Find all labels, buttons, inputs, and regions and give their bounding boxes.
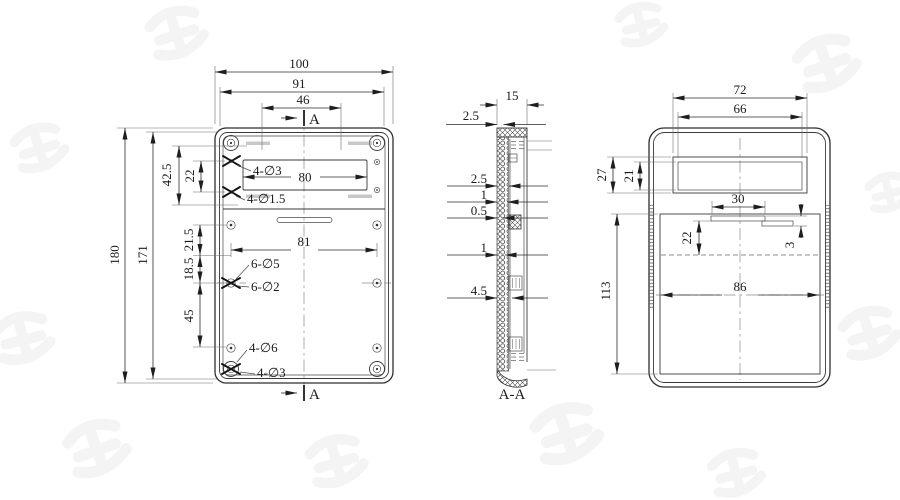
front-small-slot <box>277 218 332 223</box>
dim-text-2-5-top: 2.5 <box>463 108 479 123</box>
dim-text-15: 15 <box>506 88 519 103</box>
side-view: 72 66 27 21 30 22 <box>594 82 830 387</box>
callout-6d5: 6-∅5 <box>251 256 280 271</box>
dim-text-1b: 1 <box>481 240 488 255</box>
dim-top-offset: 42.5 <box>159 146 247 205</box>
front-view: 80 81 100 91 46 <box>107 56 393 403</box>
callout-4d3-bottom: 4-∅3 <box>257 365 286 380</box>
callout-4d6: 4-∅6 <box>249 340 278 355</box>
dim-tab-width: 30 <box>712 191 765 214</box>
section-bottom-hidden <box>511 354 527 361</box>
section-wall-band <box>509 139 511 369</box>
callout-cross-marks <box>222 156 240 374</box>
callout-4d3-top: 4-∅3 <box>253 163 282 178</box>
dim-text-46: 46 <box>297 92 311 107</box>
dim-text-3: 3 <box>782 242 797 249</box>
dim-mid-a: 21.5 <box>181 225 231 256</box>
side-outer-outline <box>649 128 830 387</box>
section-top-cap <box>497 128 527 137</box>
dim-text-21: 21 <box>621 170 636 183</box>
dim-text-180: 180 <box>107 245 122 265</box>
dim-text-42-5: 42.5 <box>159 164 174 187</box>
dim-depth: 15 <box>480 88 544 125</box>
section-left-wall <box>497 137 509 371</box>
section-letter-top: A <box>309 112 320 128</box>
dim-text-2-5: 2.5 <box>471 171 487 186</box>
dim-text-45: 45 <box>181 310 196 323</box>
dim-text-66: 66 <box>734 101 748 116</box>
dim-text-81: 81 <box>298 234 311 249</box>
callout-4d1-5: 4-∅1.5 <box>247 191 285 206</box>
dim-text-22: 22 <box>182 170 197 183</box>
callout-6d2: 6-∅2 <box>251 279 280 294</box>
dim-text-86: 86 <box>734 279 748 294</box>
dim-tab-offset: 22 <box>679 221 712 255</box>
dim-text-4-5: 4.5 <box>471 283 487 298</box>
section-letter-bottom: A <box>309 387 320 403</box>
enclosure-technical-drawing: 80 81 100 91 46 <box>0 0 900 500</box>
dim-text-1a: 1 <box>481 187 488 202</box>
dim-text-72: 72 <box>734 82 747 97</box>
section-marker-bottom: A <box>281 385 320 403</box>
dim-mid-b: 18.5 <box>181 256 224 284</box>
section-bosses <box>509 154 522 351</box>
dim-pilot-pitch: 22 <box>182 161 225 192</box>
dim-text-0-5: 0.5 <box>471 203 487 218</box>
side-inner-outline <box>654 133 826 383</box>
section-bottom-foot <box>497 371 527 387</box>
section-title: A-A <box>499 387 526 403</box>
dim-slot-spacing: 46 <box>262 92 341 150</box>
side-tab <box>711 216 765 221</box>
hole-callouts: 4-∅3 4-∅1.5 6-∅5 6-∅2 4-∅6 4-∅3 <box>236 163 286 380</box>
section-marker-top: A <box>281 110 320 128</box>
section-view: 15 2.5 2.5 1 0.5 1 4 <box>446 88 556 403</box>
dim-text-27: 27 <box>594 168 609 182</box>
dim-text-113: 113 <box>598 281 613 300</box>
drawing-canvas: 80 81 100 91 46 <box>0 0 900 500</box>
side-grip-ribs-right <box>826 205 830 310</box>
dim-text-18-5: 18.5 <box>181 258 196 281</box>
dim-text-22b: 22 <box>679 232 694 245</box>
side-tab-2 <box>762 221 793 226</box>
dim-cavity-width: 86 <box>661 279 819 295</box>
dim-text-80: 80 <box>299 170 312 185</box>
dim-text-171: 171 <box>135 245 150 265</box>
dim-lip: 2.5 <box>446 108 546 125</box>
side-grip-ribs-left <box>650 205 654 310</box>
dim-text-21-5: 21.5 <box>181 229 196 252</box>
dim-text-100: 100 <box>289 56 309 71</box>
dim-text-30: 30 <box>732 191 745 206</box>
dim-text-91: 91 <box>293 76 306 91</box>
